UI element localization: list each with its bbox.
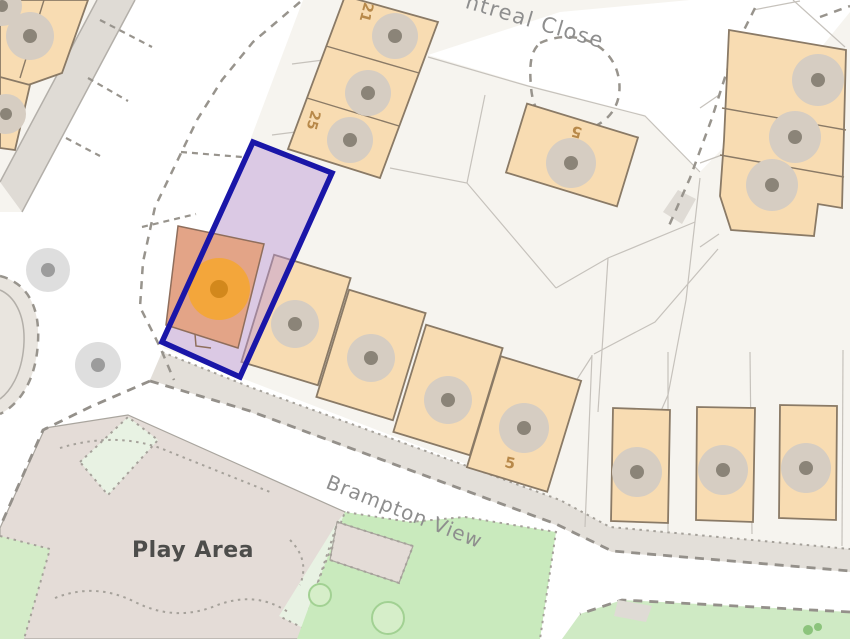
tree-icon: [612, 447, 662, 497]
tree-icon: [345, 70, 391, 116]
play-area-label: Play Area: [132, 538, 254, 563]
tree-icon: [746, 159, 798, 211]
shrub-icon: [814, 623, 822, 631]
tree-icon: [781, 443, 831, 493]
tree-sketch-icon: [309, 584, 331, 606]
tree-icon: [372, 13, 418, 59]
tree-icon: [698, 445, 748, 495]
tree-icon: [347, 334, 395, 382]
tree-sketch-icon: [372, 602, 404, 634]
shrub-icon: [803, 625, 813, 635]
tree-icon: [499, 403, 549, 453]
map-canvas[interactable]: Play Area: [0, 0, 850, 639]
tree-icon: [327, 117, 373, 163]
tree-icon: [75, 342, 121, 388]
tree-icon: [792, 54, 844, 106]
map-container: Play Area: [0, 0, 850, 639]
tree-icon: [271, 300, 319, 348]
tree-icon: [424, 376, 472, 424]
tree-icon: [769, 111, 821, 163]
tree-icon: [546, 138, 596, 188]
tree-icon: [26, 248, 70, 292]
